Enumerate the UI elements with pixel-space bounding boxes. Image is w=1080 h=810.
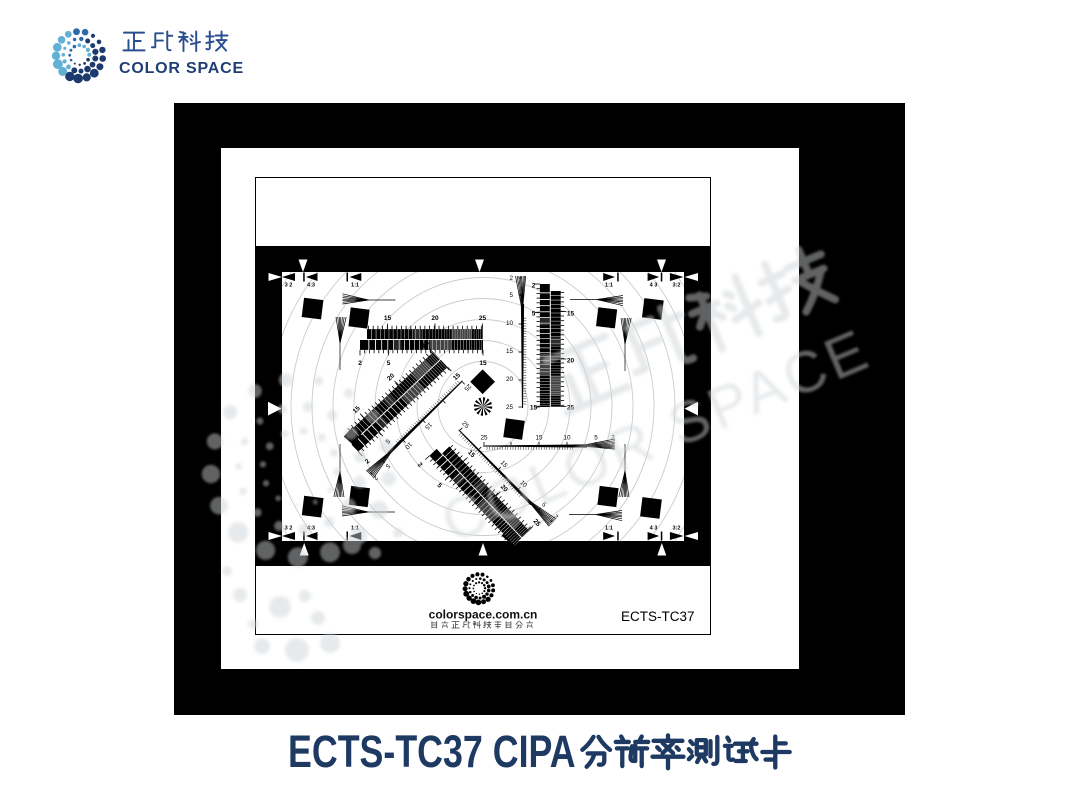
svg-text:COLOR SPACE: COLOR SPACE: [432, 316, 880, 555]
